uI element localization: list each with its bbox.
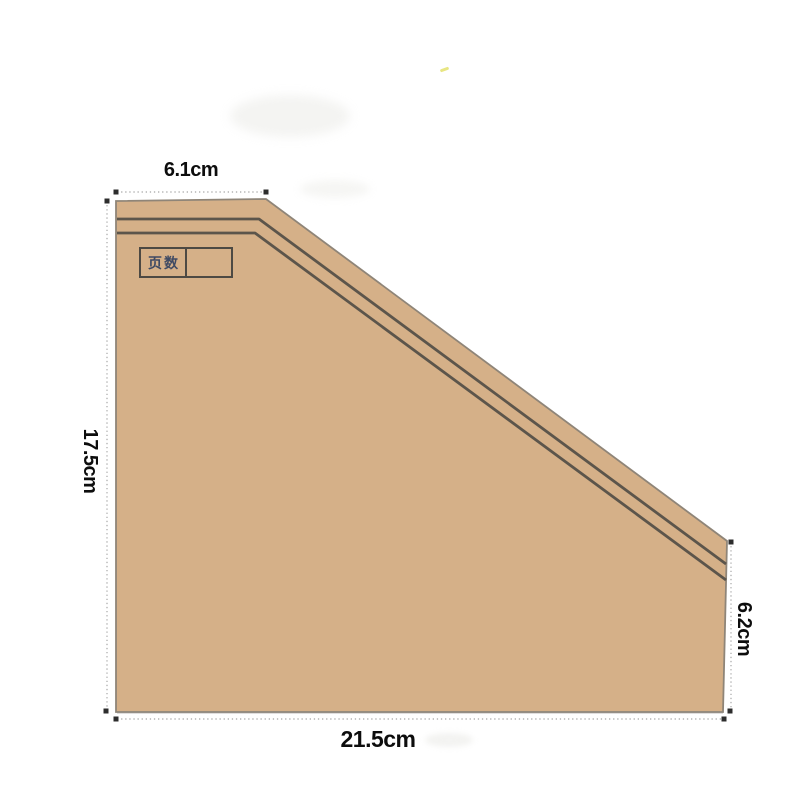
product-dimension-diagram: 6.1cm 17.5cm 6.2cm 21.5cm 页数 xyxy=(0,0,800,800)
dimension-marker xyxy=(728,709,733,714)
dimension-label-right-height: 6.2cm xyxy=(733,569,755,689)
dimension-marker xyxy=(722,717,727,722)
dimension-label-left-height: 17.5cm xyxy=(79,401,101,521)
folder-body-shape xyxy=(116,199,727,712)
dimension-marker xyxy=(105,199,110,204)
diagram-canvas xyxy=(0,0,800,800)
dimension-marker xyxy=(729,540,734,545)
dimension-marker xyxy=(264,190,269,195)
dimension-marker xyxy=(114,190,119,195)
dimension-marker xyxy=(114,717,119,722)
page-count-label: 页数 xyxy=(140,248,186,277)
dimension-marker xyxy=(104,709,109,714)
dimension-label-bottom-width: 21.5cm xyxy=(317,726,439,752)
dimension-label-top-width: 6.1cm xyxy=(141,159,241,181)
